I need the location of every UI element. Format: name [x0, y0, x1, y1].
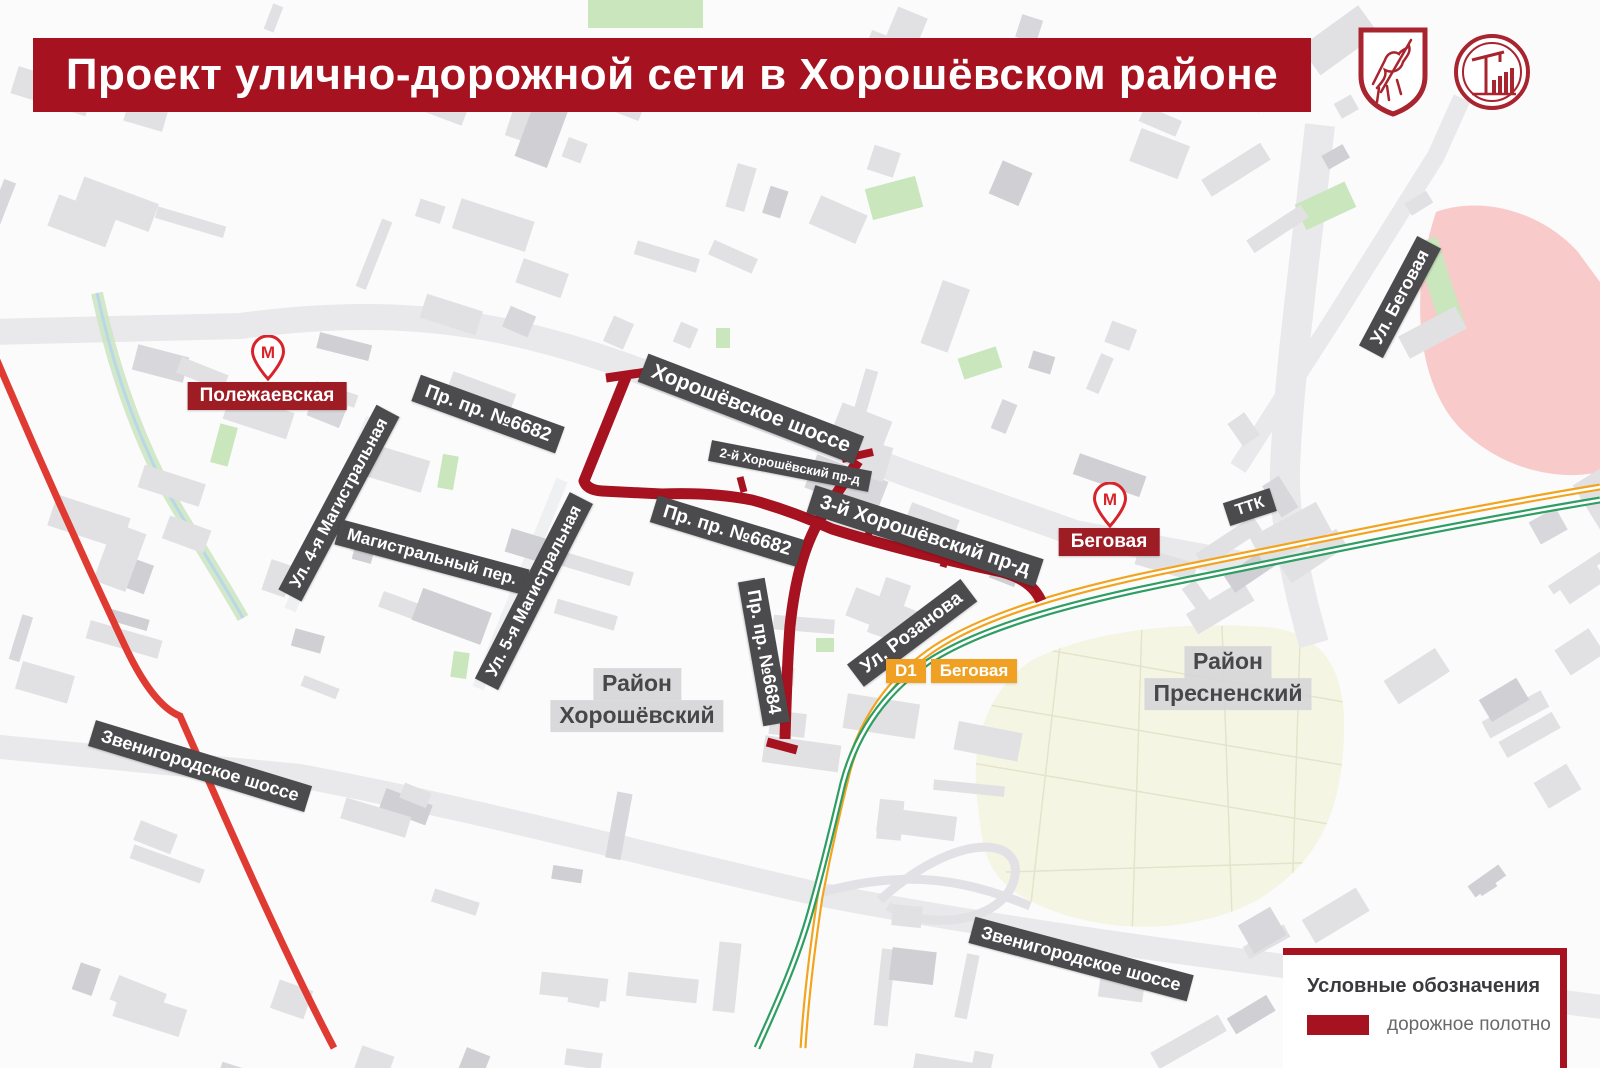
d1-station-label: D1Беговая: [886, 659, 1017, 683]
map-poster: Проект улично-дорожной сети в Хорошёвско…: [0, 0, 1600, 1068]
poster-title: Проект улично-дорожной сети в Хорошёвско…: [66, 50, 1278, 100]
legend-box: Условные обозначения дорожное полотно: [1283, 948, 1567, 1068]
building-footprint: [889, 947, 937, 985]
road-surface-swatch: [1307, 1015, 1369, 1035]
crane-icon: [1452, 30, 1532, 114]
building-footprint: [891, 904, 923, 928]
building-footprint: [876, 799, 904, 841]
svg-text:М: М: [1103, 490, 1117, 509]
metro-pin: М: [249, 335, 287, 386]
legend-item: дорожное полотно: [1307, 1014, 1560, 1036]
metro-pin: М: [1091, 482, 1129, 533]
metro-icon: М: [249, 335, 287, 381]
district-label: РайонПресненский: [1144, 646, 1311, 710]
d1-line-badge: D1: [886, 659, 926, 683]
construction-complex-logo: [1452, 30, 1532, 119]
title-banner: Проект улично-дорожной сети в Хорошёвско…: [33, 38, 1311, 112]
metro-station-label: Полежаевская: [188, 382, 347, 410]
d1-station-name: Беговая: [931, 659, 1018, 683]
moscow-coat-of-arms-logo: [1352, 26, 1434, 123]
district-label: РайонХорошёвский: [550, 668, 723, 732]
map-canvas: [0, 0, 1600, 1068]
shield-icon: [1352, 26, 1434, 118]
metro-icon: М: [1091, 482, 1129, 528]
legend-title: Условные обозначения: [1307, 975, 1560, 998]
legend-item-label: дорожное полотно: [1387, 1014, 1551, 1036]
svg-text:М: М: [261, 343, 275, 362]
